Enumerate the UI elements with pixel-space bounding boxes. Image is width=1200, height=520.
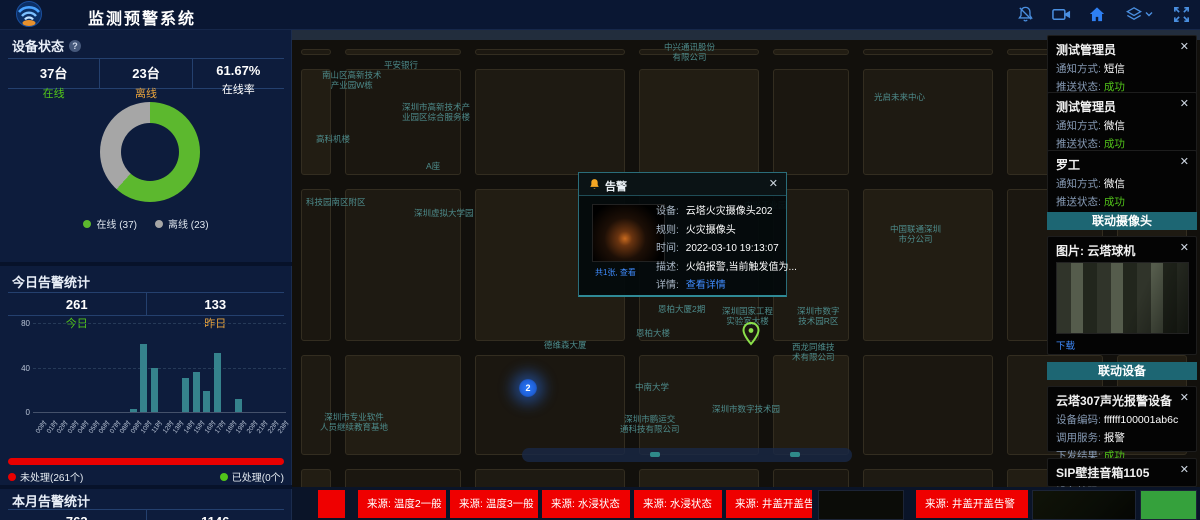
map-pin-marker[interactable]: [741, 322, 761, 348]
map-label: 深圳市专业软件 人员继续教育基地: [320, 412, 388, 432]
card-title: 云塔307声光报警设备: [1056, 392, 1188, 409]
alert-source-chip[interactable]: [318, 490, 345, 518]
popup-field-row: 时间: 2022-03-10 19:13:07: [656, 239, 784, 258]
card-row: 推送状态: 成功: [1056, 136, 1188, 151]
map-label: 深圳市鹏运交 通科技有限公司: [620, 414, 680, 434]
map-toolbar[interactable]: [522, 448, 852, 462]
map-label: 深圳虚拟大学园: [414, 208, 474, 218]
map-label: 高科机楼: [316, 134, 350, 144]
alert-popup: 告警 ✕ 共1张, 查看 设备: 云塔火灾摄像头202规则: 火灾摄像头时间: …: [578, 172, 787, 297]
map-building-block: [475, 49, 625, 55]
processed-label: 已处理(0个): [232, 469, 284, 484]
map-cluster-marker[interactable]: 2: [519, 379, 537, 397]
right-notifications-panel: 测试管理员✕通知方式: 短信推送状态: 成功测试管理员✕通知方式: 微信推送状态…: [1045, 30, 1200, 487]
notification-card: 罗工✕通知方式: 微信推送状态: 成功: [1047, 150, 1197, 214]
month-value: 763: [8, 514, 146, 520]
x-axis-label: 15时: [190, 418, 206, 435]
map-label: 德维森大厦: [544, 340, 587, 350]
alert-source-chip[interactable]: 来源: 温度3一般: [450, 490, 538, 518]
device-card: 云塔307声光报警设备✕设备编码: ffffff100001ab6c调用服务: …: [1047, 386, 1197, 452]
map-building-block: [475, 355, 625, 455]
close-icon[interactable]: ✕: [1180, 463, 1189, 476]
video-camera-icon[interactable]: [1050, 3, 1072, 25]
month-alarms-title: 本月告警统计: [12, 491, 90, 510]
bar: [151, 368, 158, 413]
device-status-donut-chart: [100, 102, 200, 202]
unprocessed-label: 未处理(261个): [20, 469, 83, 484]
bar: [140, 344, 147, 412]
today-stat-cell: 133昨日: [147, 293, 285, 315]
close-icon[interactable]: ✕: [769, 177, 778, 190]
card-row: 调用服务: 报警: [1056, 430, 1188, 445]
x-axis-label: 23时: [275, 418, 291, 435]
card-row: 通知方式: 微信: [1056, 118, 1188, 133]
legend-item[interactable]: 离线 (23): [155, 216, 209, 231]
x-axis-label: 20时: [243, 418, 259, 435]
map-label: 深圳市数字技术园: [712, 404, 780, 414]
x-axis-label: 16时: [201, 418, 217, 435]
processed-dot-icon: [220, 473, 228, 481]
map-building-block: [773, 69, 849, 175]
map-building-block: [863, 189, 993, 341]
left-stats-panel: 设备状态 ? 37台在线23台离线61.67%在线率 在线 (37)离线 (23…: [0, 30, 292, 520]
x-axis-label: 00时: [32, 418, 48, 435]
x-axis-label: 03时: [64, 418, 80, 435]
camera-card: 图片: 云塔球机 ✕ 下载: [1047, 236, 1197, 355]
legend-dot-icon: [155, 220, 163, 228]
legend-item[interactable]: 在线 (37): [83, 216, 137, 231]
map-label: 中南大学: [635, 382, 669, 392]
help-icon[interactable]: ?: [69, 40, 81, 52]
map-label: 科技园南区附区: [306, 197, 366, 207]
monitoring-dashboard: 监测预警系统 设备状态 ? 37台在线23台离线61.67%: [0, 0, 1200, 520]
x-axis-label: 08时: [117, 418, 133, 435]
page-title: 监测预警系统: [88, 5, 196, 29]
month-value: 1146: [147, 514, 285, 520]
x-axis-label: 01时: [43, 418, 59, 435]
card-title: 测试管理员: [1056, 41, 1188, 58]
x-axis-label: 17时: [211, 418, 227, 435]
map-building-block: [345, 49, 461, 55]
map-building-block: [301, 49, 331, 55]
map-label: A座: [426, 161, 440, 171]
header-toolbar: [1014, 3, 1192, 25]
alert-popup-fields: 设备: 云塔火灾摄像头202规则: 火灾摄像头时间: 2022-03-10 19…: [656, 202, 784, 295]
x-axis-label: 12时: [159, 418, 175, 435]
map-building-block: [773, 355, 849, 455]
device-status-title: 设备状态 ?: [12, 36, 81, 55]
today-alarms-title: 今日告警统计: [12, 272, 90, 291]
bar: [130, 409, 137, 412]
map-label: 恩柏大厦2期: [658, 304, 705, 314]
close-icon[interactable]: ✕: [1180, 97, 1189, 110]
popup-field-row: 描述: 火焰报警,当前触发值为...: [656, 258, 784, 277]
map-building-block: [475, 69, 625, 175]
map-label: 光启未来中心: [874, 92, 925, 102]
x-axis-label: 19时: [233, 418, 249, 435]
alarm-bell-icon: [588, 178, 601, 191]
map-building-block: [773, 49, 849, 55]
unprocessed-progress-bar: [8, 458, 284, 465]
x-axis-label: 21时: [254, 418, 270, 435]
app-logo-icon: [14, 1, 44, 28]
alert-source-chip[interactable]: 来源: 井盖开盖告警: [726, 490, 812, 518]
alert-video-thumbnail[interactable]: [1032, 490, 1136, 520]
alert-popup-title: 告警: [605, 178, 627, 194]
map-building-block: [863, 49, 993, 55]
card-title: 罗工: [1056, 156, 1188, 173]
alert-source-chip[interactable]: 来源: 水浸状态: [542, 490, 630, 518]
popup-field-row: 设备: 云塔火灾摄像头202: [656, 202, 784, 221]
map-building-block: [863, 355, 993, 455]
alert-source-chip[interactable]: 来源: 水浸状态: [634, 490, 722, 518]
popup-field-row: 详情: 查看详情: [656, 276, 784, 295]
alert-video-thumbnail[interactable]: [818, 490, 904, 520]
x-axis-label: 11时: [148, 418, 164, 435]
bell-off-icon[interactable]: [1014, 3, 1036, 25]
popup-field-row: 规则: 火灾摄像头: [656, 221, 784, 240]
progress-legend: 未处理(261个) 已处理(0个): [8, 469, 284, 484]
x-axis-label: 10时: [138, 418, 154, 435]
map-label: 南山区高新技术 产业园W栋: [322, 70, 382, 90]
map-building-block: [863, 69, 993, 175]
alarm-snapshot-thumbnail[interactable]: [592, 204, 665, 262]
map-label: 深圳市数字 技术园R区: [797, 306, 840, 326]
alert-video-thumbnail[interactable]: [1140, 490, 1197, 520]
x-axis-label: 05时: [85, 418, 101, 435]
card-row: 通知方式: 微信: [1056, 176, 1188, 191]
alert-source-chip[interactable]: 来源: 温度2一般: [358, 490, 446, 518]
map-building-block: [345, 355, 461, 455]
device-card: SIP壁挂音箱1105✕设备编码: 1105: [1047, 458, 1197, 487]
x-axis-label: 07时: [106, 418, 122, 435]
x-axis-label: 09时: [127, 418, 143, 435]
close-icon[interactable]: ✕: [1180, 241, 1189, 254]
close-icon[interactable]: ✕: [1180, 155, 1189, 168]
map-label: 恩柏大楼: [636, 328, 670, 338]
x-axis-label: 18时: [222, 418, 238, 435]
layers-icon[interactable]: [1122, 3, 1156, 25]
device-status-stats: 37台在线23台离线61.67%在线率: [8, 58, 284, 89]
device-stat-cell: 61.67%在线率: [193, 59, 284, 88]
chevron-down-icon: [1144, 9, 1154, 19]
section-divider: [0, 262, 292, 266]
x-axis-label: 13时: [169, 418, 185, 435]
camera-card-title: 图片: 云塔球机: [1056, 242, 1188, 259]
bar: [214, 353, 221, 412]
download-link[interactable]: 下载: [1056, 338, 1188, 352]
fullscreen-icon[interactable]: [1170, 3, 1192, 25]
map-label: 西龙同维技 术有限公司: [792, 342, 835, 362]
map-building-block: [301, 355, 331, 455]
view-details-link[interactable]: 查看详情: [683, 280, 726, 291]
section-divider: [0, 485, 292, 489]
notification-card: 测试管理员✕通知方式: 微信推送状态: 成功: [1047, 92, 1197, 156]
bar: [235, 399, 242, 412]
donut-legend: 在线 (37)离线 (23): [0, 216, 292, 231]
device-stat-cell: 23台离线: [100, 59, 192, 88]
camera-snapshot-image[interactable]: [1056, 262, 1189, 334]
today-alarm-stats: 261今日133昨日: [8, 292, 284, 316]
x-axis-label: 04时: [74, 418, 90, 435]
notification-card: 测试管理员✕通知方式: 短信推送状态: 成功: [1047, 35, 1197, 99]
x-axis-label: 06时: [96, 418, 112, 435]
card-title: 测试管理员: [1056, 98, 1188, 115]
close-icon[interactable]: ✕: [1180, 391, 1189, 404]
x-axis-label: 22时: [264, 418, 280, 435]
close-icon[interactable]: ✕: [1180, 40, 1189, 53]
map-building-block: [639, 69, 759, 175]
today-stat-cell: 261今日: [8, 293, 147, 315]
x-axis-label: 02时: [53, 418, 69, 435]
map-label: 中兴通讯股份 有限公司: [664, 42, 715, 62]
card-row: 设备编码: ffffff100001ab6c: [1056, 412, 1188, 427]
device-stat-cell: 37台在线: [8, 59, 100, 88]
home-icon[interactable]: [1086, 3, 1108, 25]
card-row: 推送状态: 成功: [1056, 194, 1188, 209]
linked-cameras-header[interactable]: 联动摄像头: [1047, 212, 1197, 230]
map-label: 平安银行: [384, 60, 418, 70]
bottom-alert-strip: 来源: 温度2一般来源: 温度3一般来源: 水浸状态来源: 水浸状态来源: 井盖…: [292, 487, 1200, 520]
legend-dot-icon: [83, 220, 91, 228]
top-header: 监测预警系统: [0, 0, 1200, 30]
bar: [203, 391, 210, 412]
map-label: 深圳市高新技术产 业园区综合服务楼: [402, 102, 470, 122]
map-label: 中国联通深圳 市分公司: [890, 224, 941, 244]
card-title: SIP壁挂音箱1105: [1056, 464, 1188, 481]
bar: [193, 372, 200, 412]
x-axis-label: 14时: [180, 418, 196, 435]
alert-popup-header: 告警 ✕: [579, 173, 786, 196]
map-building-block: [301, 189, 331, 341]
card-row: 通知方式: 短信: [1056, 61, 1188, 76]
unprocessed-dot-icon: [8, 473, 16, 481]
bar: [182, 378, 189, 412]
month-alarm-stats: 763 1146: [8, 509, 284, 520]
alert-source-chip[interactable]: 来源: 井盖开盖告警: [916, 490, 1028, 518]
linked-devices-header[interactable]: 联动设备: [1047, 362, 1197, 380]
snapshot-view-link[interactable]: 共1张, 查看: [595, 267, 636, 278]
